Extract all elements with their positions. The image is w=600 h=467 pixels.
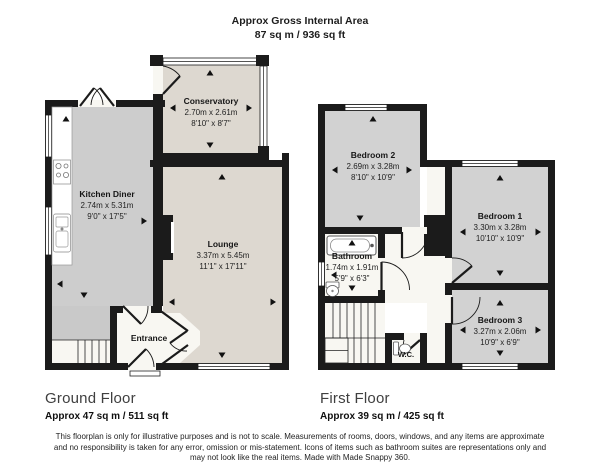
first-floor-title: First Floor xyxy=(320,390,444,407)
conservatory-label: Conservatory 2.70m x 2.61m 8'10" x 8'7" xyxy=(184,96,239,129)
lounge-label: Lounge 3.37m x 5.45m 11'1" x 17'11" xyxy=(197,239,250,272)
disclaimer: This floorplan is only for illustrative … xyxy=(20,432,580,464)
first-floor-caption: First Floor Approx 39 sq m / 425 sq ft xyxy=(320,390,444,422)
entrance-step xyxy=(130,371,160,376)
bathroom-label: Bathroom 1.74m x 1.91m 5'9" x 6'3" xyxy=(326,251,379,284)
ground-floor-caption: Ground Floor Approx 47 sq m / 511 sq ft xyxy=(45,390,168,422)
fireplace-niche xyxy=(171,222,174,253)
vestibule-area xyxy=(52,306,110,340)
bedroom3-label: Bedroom 3 3.27m x 2.06m 10'9" x 6'9" xyxy=(474,315,527,348)
gross-internal-area-header: Approx Gross Internal Area 87 sq m / 936… xyxy=(0,14,600,42)
disclaimer-line2: and no responsibility is taken for any e… xyxy=(20,443,580,454)
kitchen-fixtures xyxy=(52,107,72,265)
ground-floor-area: Approx 47 sq m / 511 sq ft xyxy=(45,411,168,422)
entrance-label: Entrance xyxy=(131,333,167,344)
basin-icon xyxy=(326,282,339,297)
header-title: Approx Gross Internal Area xyxy=(0,14,600,28)
first-floor-area: Approx 39 sq m / 425 sq ft xyxy=(320,411,444,422)
stairs-area-first xyxy=(325,303,385,363)
bedroom2-label: Bedroom 2 2.69m x 3.28m 8'10" x 10'9" xyxy=(347,150,400,183)
stove-icon xyxy=(54,160,71,184)
kitchen-diner-label: Kitchen Diner 2.74m x 5.31m 9'0" x 17'5" xyxy=(79,189,134,222)
header-area: 87 sq m / 936 sq ft xyxy=(0,28,600,42)
bedroom1-label: Bedroom 1 3.30m x 3.28m 10'10" x 10'9" xyxy=(474,211,527,244)
landing-corridor-lower xyxy=(427,303,445,363)
ground-floor-title: Ground Floor xyxy=(45,390,168,407)
disclaimer-line1: This floorplan is only for illustrative … xyxy=(20,432,580,443)
sink-icon xyxy=(54,214,71,252)
wc-label: W.C. xyxy=(398,349,414,360)
disclaimer-line3: may not look like the real items. Made w… xyxy=(20,453,580,464)
stairs-area-ground xyxy=(52,340,110,363)
